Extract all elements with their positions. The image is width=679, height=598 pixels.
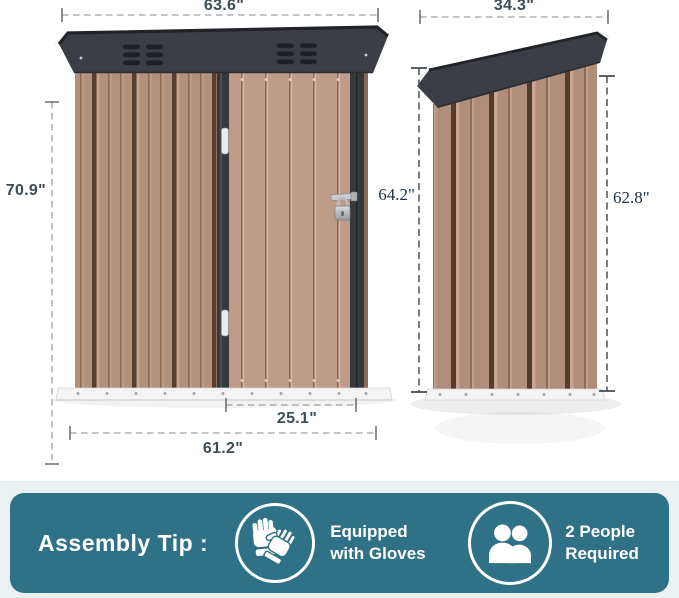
gloves-icon-glyph	[247, 515, 303, 571]
front-shed-illustration	[54, 26, 392, 400]
shed-door	[229, 72, 350, 388]
assembly-tip-banner: Assembly Tip :	[10, 493, 669, 593]
front-top-width-label: 63.6"	[174, 0, 274, 15]
gloves-tip-label: Equipped with Gloves	[330, 521, 438, 565]
product-dimension-diagram: 63.6" 70.9" 25.1" 61.2" 34.3" 64.2" 62.8…	[0, 0, 679, 598]
side-height-left-label: 64.2"	[368, 186, 415, 204]
front-height-label: 70.9"	[0, 183, 46, 200]
side-shed-illustration	[417, 30, 610, 400]
side-height-right-label: 62.8"	[613, 189, 673, 207]
people-icon	[468, 501, 552, 585]
front-bottom-width-label: 61.2"	[178, 441, 268, 458]
side-wall-panels	[433, 60, 597, 389]
shed-diagram-canvas	[0, 0, 679, 481]
people-icon-glyph	[483, 522, 537, 564]
door-width-label: 25.1"	[252, 411, 342, 428]
front-roof-fascia	[59, 27, 388, 73]
side-base-rail	[425, 389, 605, 400]
banner-title: Assembly Tip :	[38, 530, 208, 557]
gloves-icon	[235, 503, 315, 583]
side-top-width-label: 34.3"	[464, 0, 564, 15]
people-tip-label: 2 People Required	[565, 521, 665, 565]
front-base-rail	[56, 388, 392, 400]
